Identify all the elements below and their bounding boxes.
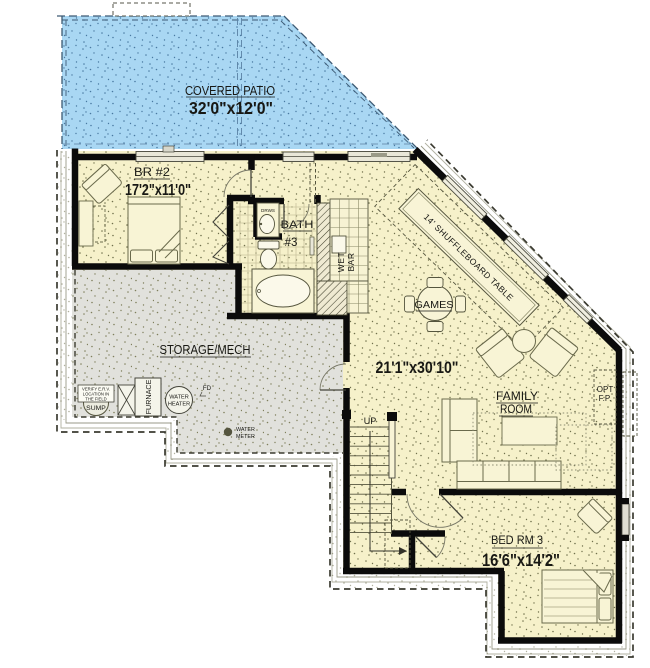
- svg-text:17'2"x11'0": 17'2"x11'0": [125, 182, 191, 199]
- svg-text:21'1"x30'10": 21'1"x30'10": [376, 358, 459, 377]
- svg-text:#3: #3: [285, 237, 298, 249]
- svg-text:WATER: WATER: [236, 427, 255, 433]
- svg-text:ROOM: ROOM: [500, 404, 532, 416]
- svg-text:F.P.: F.P.: [599, 394, 612, 403]
- svg-text:DRWS: DRWS: [261, 208, 275, 213]
- svg-text:16'6"x14'2": 16'6"x14'2": [482, 550, 560, 570]
- svg-text:STORAGE/MECH: STORAGE/MECH: [160, 343, 251, 357]
- svg-text:WET: WET: [336, 252, 346, 272]
- svg-text:WATER: WATER: [169, 395, 189, 401]
- svg-text:OPT: OPT: [597, 385, 614, 394]
- svg-text:FAMILY: FAMILY: [496, 391, 538, 403]
- svg-text:BR #2: BR #2: [134, 167, 170, 179]
- svg-text:METER: METER: [236, 434, 255, 440]
- svg-text:GAMES: GAMES: [415, 299, 454, 311]
- svg-text:FD: FD: [203, 385, 212, 392]
- svg-text:BED RM 3: BED RM 3: [491, 535, 543, 547]
- svg-text:HEATER: HEATER: [168, 402, 190, 408]
- svg-text:SUMP: SUMP: [86, 405, 106, 412]
- svg-text:UP: UP: [364, 416, 377, 426]
- svg-text:FURNACE: FURNACE: [144, 379, 153, 414]
- svg-text:THE FIELD: THE FIELD: [85, 397, 106, 402]
- svg-text:COVERED PATIO: COVERED PATIO: [185, 84, 275, 98]
- svg-text:BAR: BAR: [346, 253, 356, 272]
- svg-text:32'0"x12'0": 32'0"x12'0": [189, 98, 273, 118]
